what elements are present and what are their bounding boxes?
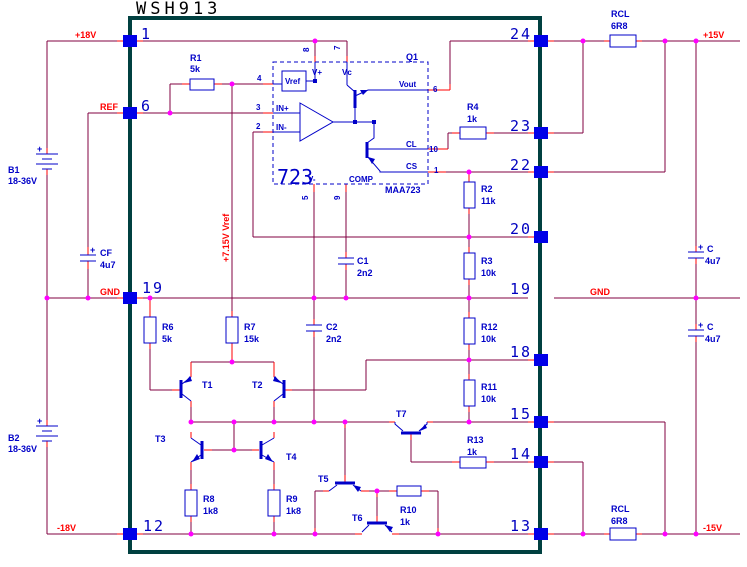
capacitor-c2: C2 2n2 [306,322,342,344]
ic-723: Vref V+ Vc IN+ IN- V- COMP Vout CL CS 4 … [256,45,439,200]
pin-label-14: 14 [510,445,532,463]
capacitor-cf: + CF 4u7 [80,245,116,270]
label-vc: Vc [342,68,352,77]
ic-pin-5: 5 [301,195,310,200]
label-b1-ref: B1 [8,165,20,175]
label-r8-ref: R8 [203,494,215,504]
transistor-t2: T2 [252,376,284,401]
label-t7: T7 [396,409,407,419]
battery-b2: + B2 18-36V [8,416,58,454]
ic-pin-7: 7 [333,45,342,50]
resistor-r7: R7 15k [226,317,260,344]
pin-square-18 [534,354,548,366]
label-t6: T6 [352,513,363,523]
resistor-r1: R1 5k [190,53,214,90]
pin-square-24 [534,35,548,47]
pin-label-15: 15 [510,405,532,423]
resistor-r9: R9 1k8 [268,490,301,516]
label-c1-ref: C1 [357,256,369,266]
label-b1-value: 18-36V [8,176,37,186]
transistor-t4: T4 [261,438,297,462]
label-r1-ref: R1 [190,53,202,63]
label-r3-value: 10k [481,268,497,278]
transistor-t7: T7 [395,409,427,433]
label-r6-ref: R6 [162,322,174,332]
pin-square-19-left [123,292,137,304]
pin-label-19-left: 19 [142,279,164,297]
label-rcl-bottom-ref: RCL [611,504,630,514]
label-r2-ref: R2 [481,184,493,194]
pin-label-20: 20 [510,220,532,238]
label-rcl-bottom-value: 6R8 [611,516,628,526]
label-cf-value: 4u7 [100,260,116,270]
transistor-t5: T5 [318,474,361,492]
label-t2: T2 [252,380,263,390]
transistor-t6: T6 [352,513,393,532]
label-maa723: MAA723 [385,185,421,195]
label-r11-value: 10k [481,394,497,404]
capacitors: + CF 4u7 C1 2n2 C2 2n2 + C 4u7 + C 4u7 [80,242,721,344]
b2-plus: + [37,416,42,426]
label-r3-ref: R3 [481,256,493,266]
pin-square-23 [534,127,548,139]
b1-plus: + [37,144,42,154]
resistor-r4: R4 1k [460,102,486,139]
label-b2-ref: B2 [8,433,20,443]
label-c-bottom-ref: C [707,322,714,332]
net-plus15: +15V [703,30,724,40]
label-c2-value: 2n2 [326,334,342,344]
circuit-schematic: Vref V+ Vc IN+ IN- V- COMP Vout CL CS 4 … [0,0,747,567]
label-cs: CS [406,162,418,171]
label-r12-ref: R12 [481,322,498,332]
resistor-r2: R2 11k [464,182,497,208]
ic-pin-1: 1 [434,166,439,175]
ic-pin-4: 4 [257,74,262,83]
c-bottom-plus: + [698,320,703,330]
ic-pin-8: 8 [302,47,311,52]
resistor-r13: R13 1k [460,435,486,468]
resistor-r6: R6 5k [144,317,174,344]
resistor-rcl-bottom: RCL 6R8 [610,504,636,540]
net-gnd-left: GND [100,287,121,297]
label-t5: T5 [318,474,329,484]
label-c-top-value: 4u7 [705,256,721,266]
battery-b1: + B1 18-36V [8,144,58,186]
pin-square-1 [123,35,137,47]
batteries: + B1 18-36V + B2 18-36V [8,144,58,454]
capacitor-c-bottom: + C 4u7 [688,320,721,344]
resistors: R1 5k RCL 6R8 RCL 6R8 R4 1k R2 11k R3 10… [144,9,636,540]
pin-label-13: 13 [510,517,532,535]
net-plus18: +18V [75,30,96,40]
pin-square-22 [534,166,548,178]
capacitor-c1: C1 2n2 [338,256,373,278]
label-r12-value: 10k [481,334,497,344]
transistor-t3: T3 [155,434,202,462]
pin-label-22: 22 [510,156,532,174]
ic-pin-2: 2 [256,122,261,131]
pin-label-12: 12 [143,517,165,535]
label-r4-value: 1k [467,114,478,124]
pin-label-19-right: 19 [510,280,532,298]
net-minus15: -15V [703,523,722,533]
label-r7-ref: R7 [244,322,256,332]
label-cl: CL [406,140,417,149]
resistor-r8: R8 1k8 [185,490,218,516]
pin-label-6: 6 [141,97,152,115]
resistor-r11: R11 10k [464,380,497,406]
label-t4: T4 [286,452,297,462]
label-c2-ref: C2 [326,322,338,332]
label-vref: Vref [285,77,300,86]
label-comp: COMP [349,175,374,184]
net-gnd-right: GND [590,287,611,297]
label-c1-value: 2n2 [357,268,373,278]
label-cf-ref: CF [100,248,112,258]
label-r1-value: 5k [190,64,201,74]
resistor-r10: R10 1k [397,486,421,527]
label-inplus: IN+ [276,104,289,113]
pin-label-23: 23 [510,117,532,135]
label-r10-value: 1k [400,517,411,527]
label-723: 723 [277,165,313,189]
pin-square-6 [123,107,137,119]
resistor-rcl-top: RCL 6R8 [610,9,636,47]
pin-label-1: 1 [141,25,152,43]
label-t1: T1 [202,380,213,390]
ic-pin-10: 10 [429,145,438,154]
pin-square-20 [534,231,548,243]
ic-pin-6: 6 [433,85,438,94]
label-r13-ref: R13 [467,435,484,445]
label-r10-ref: R10 [400,505,417,515]
pin-square-12 [123,528,137,540]
label-b2-value: 18-36V [8,444,37,454]
c-top-plus: + [698,242,703,252]
label-r9-ref: R9 [286,494,298,504]
net-vref-rail: +7.15V Vref [221,213,231,262]
capacitor-c-top: + C 4u7 [688,242,721,266]
label-r4-ref: R4 [467,102,479,112]
module-title: WSH913 [136,0,221,19]
ic-pin-9: 9 [333,195,342,200]
pin-square-13 [534,528,548,540]
pin-square-15 [534,416,548,428]
resistor-r3: R3 10k [464,253,497,279]
label-c-bottom-value: 4u7 [705,334,721,344]
label-rcl-top-value: 6R8 [611,21,628,31]
label-r13-value: 1k [467,447,478,457]
label-r6-value: 5k [162,334,173,344]
label-t3: T3 [155,434,166,444]
transistor-t1: T1 [181,376,213,401]
label-vout: Vout [399,80,417,89]
pin-label-18: 18 [510,343,532,361]
cf-plus: + [90,245,95,255]
label-c-top-ref: C [707,244,714,254]
label-vplus: V+ [312,68,322,77]
label-r11-ref: R11 [481,382,497,392]
label-r8-value: 1k8 [203,506,218,516]
resistor-r12: R12 10k [464,318,498,344]
label-rcl-top-ref: RCL [611,9,630,19]
label-r2-value: 11k [481,196,497,206]
ic-pin-3: 3 [256,103,261,112]
label-r7-value: 15k [244,334,260,344]
net-minus18: -18V [57,523,76,533]
label-inminus: IN- [276,123,287,132]
pin-label-24: 24 [510,25,532,43]
pin-square-14 [534,456,548,468]
label-r9-value: 1k8 [286,506,301,516]
label-q1: Q1 [406,52,418,62]
schematic-canvas: Vref V+ Vc IN+ IN- V- COMP Vout CL CS 4 … [0,0,747,567]
net-ref: REF [100,102,119,112]
